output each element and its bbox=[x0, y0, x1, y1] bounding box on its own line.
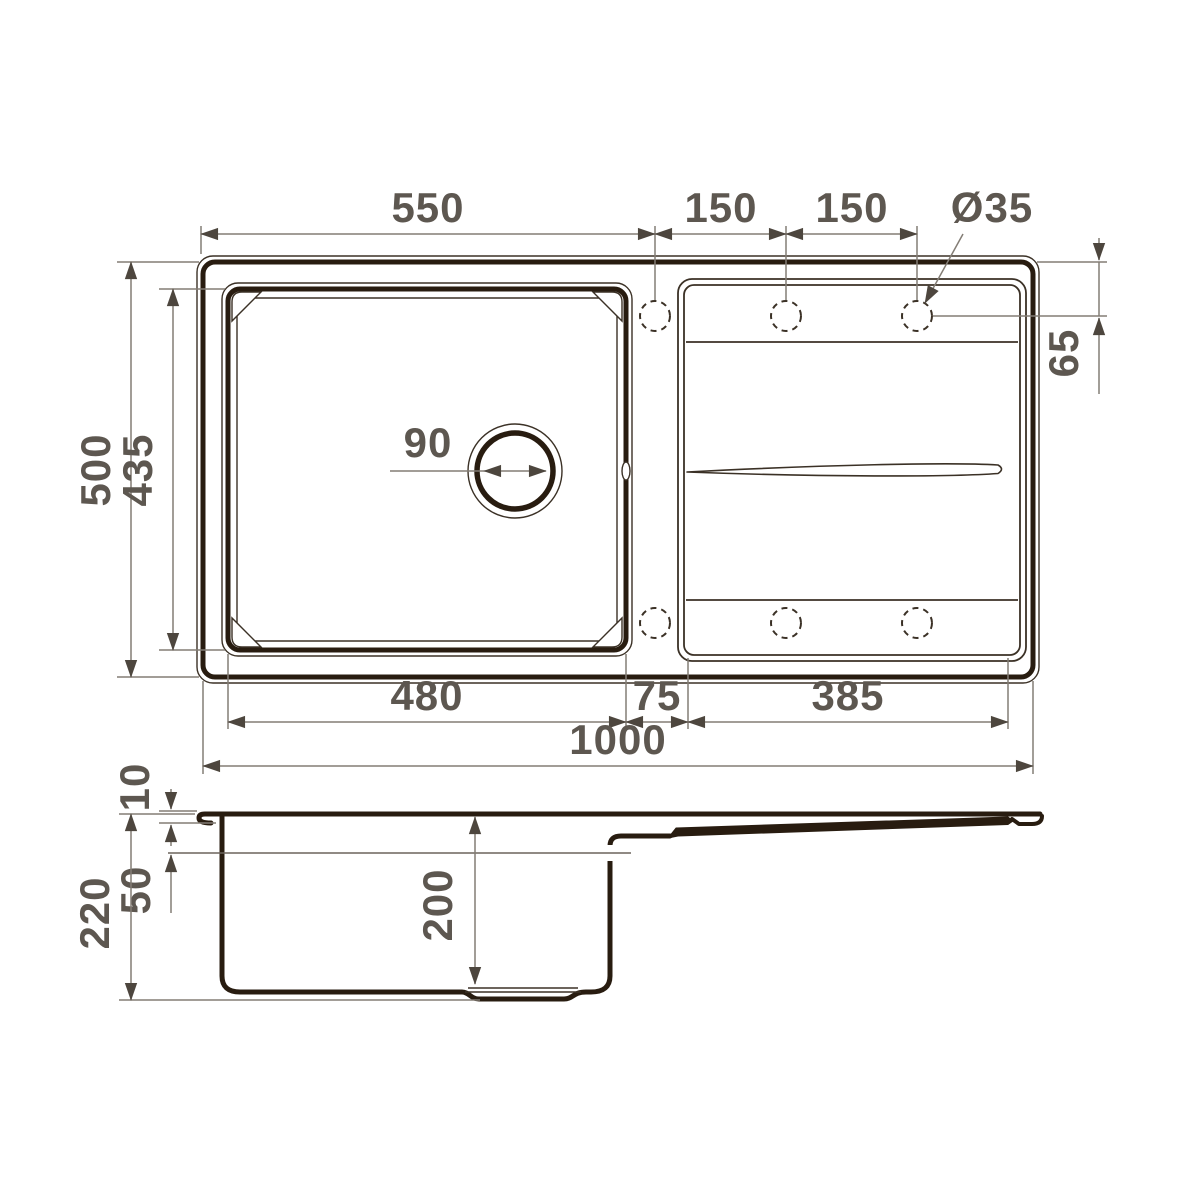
side-view-dimensions: 10 50 220 200 bbox=[71, 763, 480, 1000]
top-view bbox=[197, 256, 1039, 683]
faucet-hole-top-3 bbox=[902, 301, 932, 331]
overflow-notch bbox=[622, 462, 630, 480]
bowl-inner-line bbox=[237, 298, 617, 641]
dim-150a-label: 150 bbox=[684, 184, 757, 231]
dim-550-label: 550 bbox=[391, 184, 464, 231]
sink-technical-drawing: 550 150 150 Ø35 65 500 435 90 480 bbox=[0, 0, 1200, 1200]
hole-diameter-leader bbox=[925, 234, 963, 303]
hole-diameter-label: Ø35 bbox=[951, 184, 1033, 231]
dim-500-label: 500 bbox=[72, 433, 119, 506]
dim-10-label: 10 bbox=[111, 763, 158, 812]
faucet-hole-bottom-1 bbox=[640, 608, 670, 638]
dim-50-label: 50 bbox=[112, 866, 159, 915]
bowl-corner-chamfer-br bbox=[593, 618, 622, 647]
dim-75-label: 75 bbox=[633, 672, 682, 719]
bowl-corner-chamfer-tr bbox=[593, 292, 622, 321]
side-view bbox=[168, 814, 1042, 999]
dim-65-label: 65 bbox=[1040, 329, 1087, 378]
dim-385-label: 385 bbox=[811, 672, 884, 719]
dim-435-label: 435 bbox=[114, 433, 161, 506]
dim-150b-label: 150 bbox=[815, 184, 888, 231]
dim-480-label: 480 bbox=[390, 672, 463, 719]
bowl-outer-highlight bbox=[222, 283, 632, 656]
dim-1000-label: 1000 bbox=[569, 716, 666, 763]
side-right-edge-step bbox=[1012, 816, 1042, 824]
dim-220-label: 220 bbox=[71, 876, 118, 949]
dim-200-label: 200 bbox=[414, 868, 461, 941]
bowl-corner-chamfer-tl bbox=[232, 292, 261, 321]
bowl-edge bbox=[228, 289, 626, 650]
faucet-hole-bottom-3 bbox=[902, 608, 932, 638]
faucet-hole-top-1 bbox=[640, 301, 670, 331]
faucet-hole-bottom-2 bbox=[771, 608, 801, 638]
side-drainboard-surface bbox=[668, 817, 1013, 838]
drainboard-groove bbox=[687, 464, 1002, 476]
dim-90-label: 90 bbox=[404, 419, 453, 466]
faucet-hole-top-2 bbox=[771, 301, 801, 331]
bowl-corner-chamfer-bl bbox=[232, 618, 261, 647]
drawing-svg: 550 150 150 Ø35 65 500 435 90 480 bbox=[0, 0, 1200, 1200]
